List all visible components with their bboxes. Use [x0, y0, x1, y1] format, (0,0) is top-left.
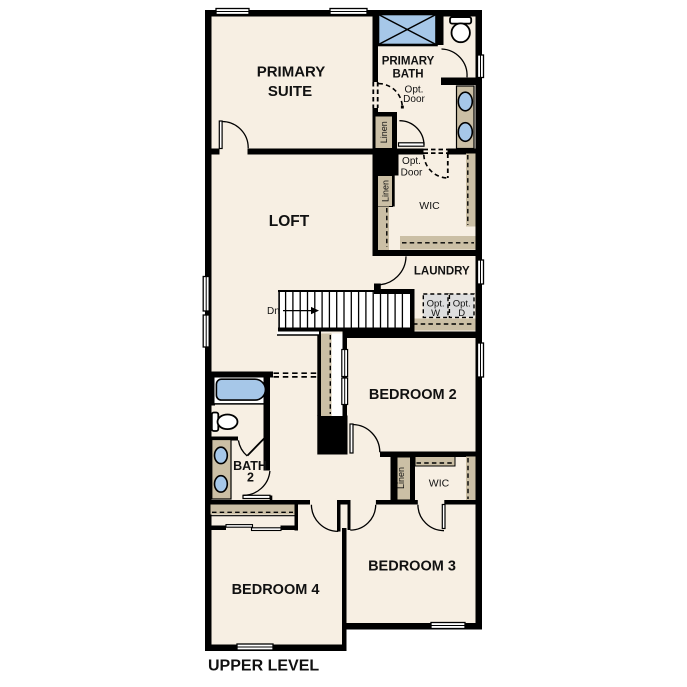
svg-text:Linen: Linen: [379, 121, 389, 143]
svg-text:Linen: Linen: [381, 180, 391, 202]
svg-text:WIC: WIC: [429, 478, 450, 490]
svg-text:LOFT: LOFT: [269, 213, 310, 230]
svg-text:BEDROOM 4: BEDROOM 4: [232, 582, 320, 598]
svg-text:UPPER LEVEL: UPPER LEVEL: [208, 658, 319, 675]
svg-text:PRIMARY: PRIMARY: [257, 64, 326, 81]
svg-text:2: 2: [247, 471, 254, 485]
svg-text:Dn: Dn: [267, 306, 280, 317]
svg-text:D: D: [458, 308, 465, 319]
svg-text:Door: Door: [403, 94, 425, 105]
svg-text:BEDROOM 2: BEDROOM 2: [369, 387, 457, 403]
svg-text:BATH: BATH: [392, 69, 423, 81]
svg-text:BEDROOM 3: BEDROOM 3: [368, 559, 456, 575]
svg-text:W: W: [431, 308, 440, 319]
svg-text:Door: Door: [401, 168, 423, 179]
svg-text:Linen: Linen: [396, 467, 406, 489]
svg-text:Opt.: Opt.: [402, 156, 421, 167]
svg-text:PRIMARY: PRIMARY: [382, 56, 435, 68]
svg-text:LAUNDRY: LAUNDRY: [414, 266, 470, 278]
svg-text:SUITE: SUITE: [268, 83, 312, 100]
svg-text:WIC: WIC: [419, 200, 440, 212]
